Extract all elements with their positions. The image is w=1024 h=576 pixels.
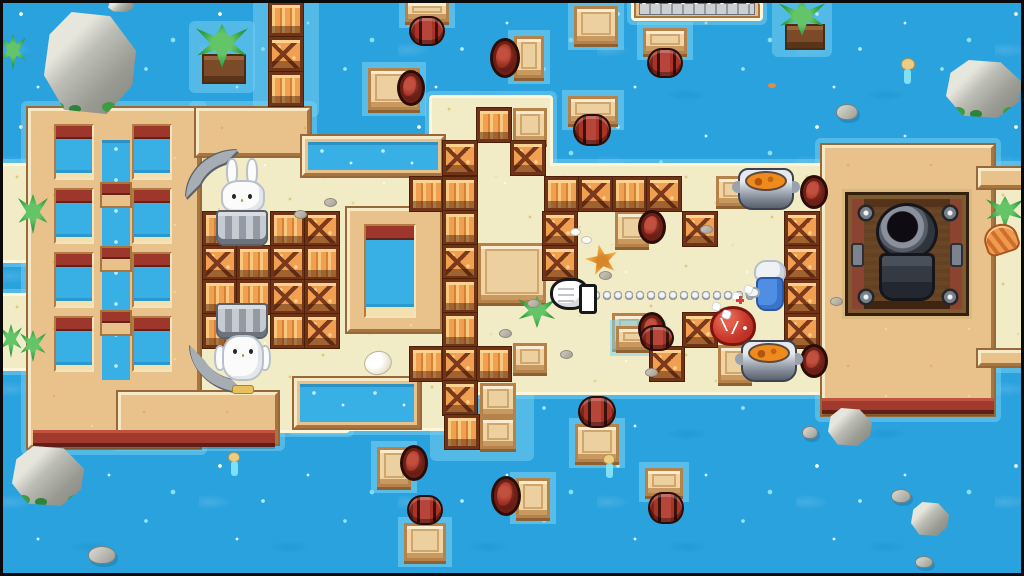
pebble bbox=[599, 271, 612, 280]
barrel[interactable] bbox=[800, 175, 828, 209]
plant bbox=[0, 34, 26, 70]
water-window bbox=[364, 224, 416, 318]
barrel[interactable] bbox=[578, 396, 616, 428]
wood-platform bbox=[196, 108, 310, 156]
crate[interactable] bbox=[647, 177, 681, 211]
crate[interactable] bbox=[545, 177, 579, 211]
crate[interactable] bbox=[410, 347, 444, 381]
crate[interactable] bbox=[443, 279, 477, 313]
crate[interactable] bbox=[271, 280, 305, 314]
cooking-pot[interactable] bbox=[741, 340, 797, 382]
cannon-axle-l bbox=[851, 243, 864, 267]
barrel[interactable] bbox=[491, 476, 521, 516]
pebble bbox=[915, 556, 933, 568]
water-window bbox=[132, 252, 172, 308]
crate[interactable] bbox=[477, 108, 511, 142]
water-window bbox=[132, 188, 172, 244]
pebble bbox=[527, 299, 540, 308]
rabbit-npc-head bbox=[222, 335, 264, 381]
crate[interactable] bbox=[511, 141, 545, 175]
rabbit-npc-feet bbox=[232, 385, 254, 394]
barrel[interactable] bbox=[573, 114, 611, 146]
duckling bbox=[901, 58, 915, 70]
barrel[interactable] bbox=[490, 38, 520, 78]
crate[interactable] bbox=[269, 72, 303, 106]
duckling bbox=[603, 454, 615, 464]
spring-coil bbox=[590, 287, 754, 304]
crate[interactable] bbox=[579, 177, 613, 211]
crate[interactable] bbox=[785, 246, 819, 280]
small-shell bbox=[581, 236, 592, 244]
rabbit-npc-pot bbox=[216, 210, 268, 246]
crate[interactable] bbox=[203, 246, 237, 280]
pebble bbox=[836, 104, 858, 120]
wood-raft[interactable] bbox=[404, 523, 446, 561]
wood-pallet[interactable] bbox=[513, 343, 547, 373]
rabbit-npc[interactable] bbox=[214, 158, 272, 248]
crate[interactable] bbox=[543, 246, 577, 280]
crate[interactable] bbox=[271, 246, 305, 280]
crate[interactable] bbox=[305, 314, 339, 348]
cannon-body bbox=[879, 253, 935, 301]
water-window bbox=[132, 124, 172, 180]
crate[interactable] bbox=[445, 415, 479, 449]
crate[interactable] bbox=[443, 211, 477, 245]
rock bbox=[946, 60, 1022, 118]
rabbit-npc[interactable] bbox=[213, 301, 273, 395]
water-window bbox=[54, 124, 94, 180]
crate[interactable] bbox=[785, 280, 819, 314]
platform-edge bbox=[33, 430, 275, 447]
crate[interactable] bbox=[785, 212, 819, 246]
barrel[interactable] bbox=[409, 16, 445, 46]
player-knight[interactable] bbox=[750, 260, 790, 314]
barrel[interactable] bbox=[638, 210, 666, 244]
barrel[interactable] bbox=[640, 325, 674, 351]
rabbit-npc-head bbox=[221, 180, 265, 214]
pool-water bbox=[308, 142, 438, 170]
small-shell bbox=[570, 228, 581, 236]
dock-pier bbox=[634, 0, 760, 18]
crate[interactable] bbox=[443, 245, 477, 279]
pebble bbox=[560, 350, 573, 359]
pebble bbox=[88, 546, 116, 564]
barrel[interactable] bbox=[800, 344, 828, 378]
pebble bbox=[294, 210, 307, 219]
boxing-glove[interactable] bbox=[550, 278, 588, 310]
wood-raft[interactable] bbox=[516, 478, 550, 518]
pebble bbox=[891, 489, 911, 503]
barrel[interactable] bbox=[397, 70, 425, 106]
cannon[interactable] bbox=[845, 192, 969, 316]
crate[interactable] bbox=[613, 177, 647, 211]
water-window bbox=[54, 188, 94, 244]
pebble bbox=[830, 297, 843, 306]
crate[interactable] bbox=[443, 347, 477, 381]
wood-platform bbox=[978, 168, 1024, 188]
cannon-axle-r bbox=[950, 243, 963, 267]
barrel[interactable] bbox=[400, 445, 428, 481]
hit-particle bbox=[736, 296, 744, 304]
rock bbox=[12, 446, 84, 506]
crate[interactable] bbox=[305, 246, 339, 280]
crate[interactable] bbox=[271, 314, 305, 348]
crate[interactable] bbox=[269, 2, 303, 36]
crate[interactable] bbox=[305, 212, 339, 246]
pebble bbox=[700, 225, 713, 234]
crate[interactable] bbox=[237, 246, 271, 280]
pebble bbox=[802, 426, 818, 439]
rabbit-npc-pot bbox=[216, 303, 268, 339]
rock bbox=[911, 502, 949, 536]
barrel[interactable] bbox=[407, 495, 443, 525]
crate[interactable] bbox=[443, 313, 477, 347]
wood-pallet[interactable] bbox=[480, 417, 516, 449]
crate[interactable] bbox=[443, 381, 477, 415]
cooking-pot[interactable] bbox=[738, 168, 794, 210]
fish bbox=[768, 83, 776, 88]
rock bbox=[44, 12, 136, 114]
crate[interactable] bbox=[410, 177, 444, 211]
water-window bbox=[54, 316, 94, 372]
crate[interactable] bbox=[443, 177, 477, 211]
wood-pallet[interactable] bbox=[513, 108, 547, 144]
pebble bbox=[645, 368, 658, 377]
pool-water bbox=[300, 384, 414, 422]
wood-pallet[interactable] bbox=[478, 243, 546, 303]
platform-bridge bbox=[100, 182, 132, 208]
pebble bbox=[499, 329, 512, 338]
rock bbox=[108, 0, 134, 12]
crate[interactable] bbox=[269, 37, 303, 71]
crate[interactable] bbox=[305, 280, 339, 314]
pebble bbox=[324, 198, 337, 207]
barrel[interactable] bbox=[648, 492, 684, 524]
game-stage bbox=[0, 0, 1024, 576]
wood-raft[interactable] bbox=[574, 6, 618, 44]
platform-bridge bbox=[100, 310, 132, 336]
crate[interactable] bbox=[443, 141, 477, 175]
water-window bbox=[132, 316, 172, 372]
wood-pallet[interactable] bbox=[480, 383, 516, 417]
duckling bbox=[228, 452, 240, 462]
water-window bbox=[54, 252, 94, 308]
platform-bridge bbox=[100, 246, 132, 272]
barrel[interactable] bbox=[647, 48, 683, 78]
player-knight-body bbox=[756, 277, 784, 311]
wood-platform bbox=[978, 350, 1024, 366]
crate[interactable] bbox=[477, 347, 511, 381]
